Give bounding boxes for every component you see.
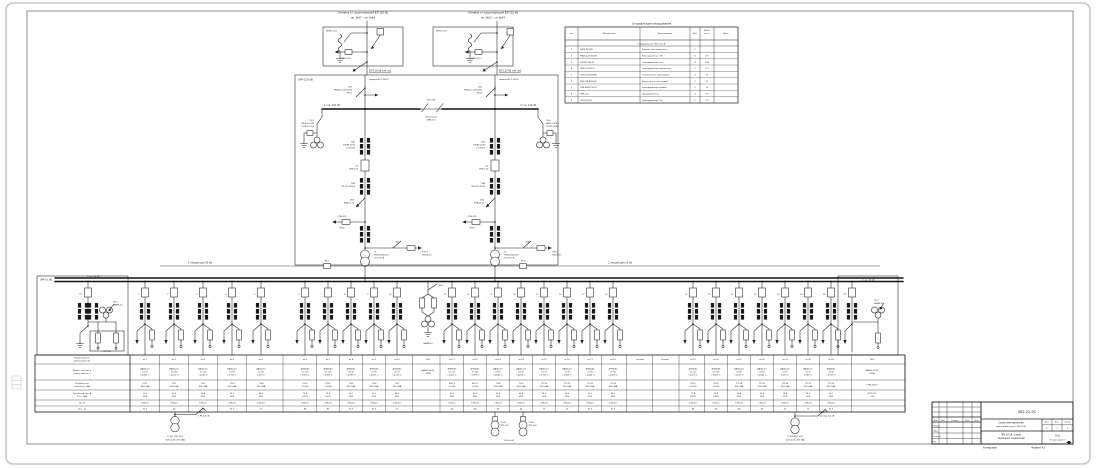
spec-name: Трансформатор ТСН [642,100,663,102]
annotation: 10/0,4 кВ; 250 кВА [165,438,185,441]
table-cell: 40 [520,409,523,411]
table-cell: ТЛК-10 [609,403,617,405]
table-row-header: Наименованиеприсоединения [74,358,91,363]
table-cell: 40 [474,409,477,411]
bay-id: 23 [777,294,780,296]
annotation: ЯКНО-110 [326,31,338,33]
feeder-bay [318,281,337,355]
table-cell: яч.23 [782,359,788,361]
annotation: Р [1046,428,1048,430]
link-disconnector-icon [520,264,527,269]
annotation: 10/0,4 кВ; 250 кВА [785,438,805,441]
feeder-bay [821,281,840,355]
table-cell: НАМИ-10-95УХЛ4 [422,369,435,375]
feeder-bay [775,281,794,355]
spec-name: Трансформатор силовой [642,86,667,89]
annotation: Q1ВЭБ-110 [349,166,358,171]
spec-mass: 0,5 [705,94,709,96]
table-cell: 36,450/5 [760,393,765,398]
table-cell: яч.14 [518,359,524,361]
generated-content: Отпайка от существующей ВЛ-110 кВоп. №47… [35,11,1071,444]
table-cell: ОПН-10/12 [866,385,878,387]
table-cell: АПвБШв3×120L=320 м [301,368,311,377]
feeder-bay [488,281,507,355]
table-row-header: Тип ТТ [79,403,87,405]
table-cell: РП-22×630 [302,383,309,388]
table-cell: РП-22×630 [325,383,332,388]
annotation: НАМИ-10 [424,342,434,345]
table-cell: ТЛК-10 [324,403,332,405]
table-cell: ТП-4250 кВА [257,383,266,388]
feeder-bay [683,281,702,355]
bay-id: 8 [344,294,346,296]
spec-name: Выключатель элегазовый [642,80,669,83]
table-cell: яч.18 [610,359,616,361]
bay-id: 25 [823,294,826,296]
bay-id: 17 [582,294,585,296]
table-cell: яч.15 [541,359,547,361]
table-cell: АПвБШв3×120L=395 м [471,368,481,377]
table-cell: яч.7 [326,359,331,361]
table-cell: 23,130/5 [230,393,235,398]
table-cell: ААШв-103×95L=145 м [757,368,767,377]
fuse-icon [876,333,881,343]
annotation: ПКТ-101 [103,351,112,353]
table-row-header: Расчётный ток, АКт.т., А/А [73,392,92,398]
spec-mass: 178 [705,62,709,64]
table-cell: РП-32×630 [690,383,697,388]
table-cell: 14,520/5 [259,393,264,398]
table-cell: 14,520/5 [565,393,570,398]
table-cell: НАМИ-10-95УХЛ4 [866,369,879,375]
spec-title: Спецификация оборудования [632,22,672,26]
annotation: Q2 [843,294,847,296]
table-cell: АПвБШв3×70L=120 м [393,368,403,377]
table-cell: ТЛК-10 [689,403,697,405]
table-cell: 31,5 [611,409,616,411]
spec-mass: 2,1 [705,81,709,83]
spec-name: Трансформатор напряжения [642,68,671,70]
spec-designation: ПКН-110 [580,94,589,96]
annotation: 2 с.ш. 110 кВ [520,104,536,107]
table-row-header: Марка, сечение идлина кабеля, м [73,370,92,375]
annotation: QS4РНДЗ-110 [474,200,485,205]
annotation: Дата [974,420,978,422]
table-cell: ААШв-103×70L=95 м [256,368,266,377]
table-cell: ААШв-103×95L=185 м [140,368,150,377]
fuse-icon [420,298,425,308]
annotation: ВЛ-110 кВ отп. №2 [499,70,522,73]
annotation: Q1 [79,294,83,296]
annotation: QS3РНДЗ-110 [344,200,355,205]
table-cell: ААШв-103×120L=210 м [169,368,179,377]
table-cell: ТП-9630 кВА [517,383,526,388]
annotation: Т1ТМН-6300/110110/11 кВ [374,252,389,260]
table-cell: АПвБШв3×120L=305 м [324,368,334,377]
table-cell: КНС-12×320 [472,383,479,388]
table-cell: яч.9 [372,359,377,361]
spec-mass: 171 [705,68,709,70]
table-cell: 72,8100/5 [325,393,331,398]
annotation: Лист [1055,422,1060,424]
table-cell: 80 [692,409,695,411]
fuse-compartment [90,331,124,351]
table-cell: 31,5 [588,409,593,411]
table-cell: 14,520/5 [806,393,811,398]
spec-qty: 4 [694,94,696,96]
spec-designation: ТМ-63/10-У1 [580,100,593,102]
spec-name: Трансформатор тока [642,62,663,64]
spec-header: Прим. [723,33,729,35]
table-cell: ТП-8630 кВА [494,383,503,388]
feeder-bay [295,281,314,355]
spec-qty: 2 [694,81,696,83]
table-cell: 23,130/5 [372,393,377,398]
table-cell: 36,450/5 [496,393,501,398]
table-cell: 40 [497,409,500,411]
table-cell: 80 [715,409,718,411]
spec-designation: РНДЗ-2-110/1000 [580,56,598,58]
hv-switchyard [55,75,903,282]
bay-id: 3 [196,294,198,296]
table-cell: ТЛК-10 [257,403,265,405]
annotation: Отпайка от существующей ВЛ-110 кВ [338,11,388,15]
table-cell: 72,8100/5 [302,393,308,398]
table-cell: ТП-2630 кВА [199,383,208,388]
incoming-cells [323,21,514,75]
annotation: Утв. [933,441,937,443]
table-cell: 36,450/5 [172,393,177,398]
table-cell: ТЛК-10 [141,403,149,405]
lv-left-vt-cell [37,276,128,355]
annotation: оп. №47 – оп. №48 [351,16,375,20]
feeder-bay [752,281,771,355]
spec-mass: 1,2 [705,100,709,102]
table-cell: ТП-3400 кВА [228,383,237,388]
table-cell: яч.16 [564,359,570,361]
fuse-icon [432,298,437,308]
table-cell: 14,520/5 [783,393,788,398]
table-cell: яч.5 [259,359,264,361]
table-cell: яч.1 [143,359,148,361]
spec-name: Разъединитель с ЗН [642,56,663,58]
table-cell: 36,450/5 [201,393,206,398]
table-cell: ТЛК-10 [517,403,525,405]
drawing-page: Отпайка от существующей ВЛ-110 кВоп. №47… [0,0,1096,468]
annotation: ОПН-110 [337,216,347,218]
table-cell: 80 [327,409,330,411]
bay-id: 16 [559,294,562,296]
annotation: 1 с.ш. 110 кВ [324,104,340,107]
feeder-bay [442,281,461,355]
table-cell: РП-1400 кВА [141,383,150,388]
table-cell: ТП-13400 кВА [609,383,618,388]
spec-pos: 9 [571,100,573,102]
feeder-bay [135,281,154,355]
annotation: 1 с.ш. 10 кВ [87,276,101,278]
table-cell: яч.19 [690,359,696,361]
table-cell: яч.13 [495,359,501,361]
table-cell: ТЛК-10 [804,403,812,405]
spec-name: Ограничитель перенапряж. [642,75,670,77]
bay-id: 13 [490,294,493,296]
annotation: Листов [1065,422,1071,424]
table-cell: 20 [807,409,810,411]
table-cell: ПКТ-1012 А [868,393,877,398]
bay-id: 9 [367,294,369,296]
table-cell: ААШв-103×95L=160 м [227,368,237,377]
annotation: Изм [934,420,938,422]
annotation: 2 с.ш. 10 кВ [862,280,876,282]
feeder-bay [511,281,530,355]
annotation: ТН-2НКФ-110-83ОПН-110/56 [546,120,559,128]
spec-header: Обозначение [602,32,616,35]
spec-designation: НКФ-110-83-У1 [580,68,596,70]
table-cell: 72,8100/5 [690,393,696,398]
tb-doc-code: 082-21-ЭС [1018,410,1037,414]
annotation: провод АС-120/19 [499,78,519,81]
table-cell: ТП-18400 кВА [827,383,836,388]
table-cell: 36,450/5 [519,393,524,398]
bay-id: 14 [513,294,516,296]
fuse-icon [96,333,101,343]
bay-id: 24 [800,294,803,296]
table-cell: 20 [260,409,263,411]
table-cell: ТП-7250 кВА [393,383,402,388]
spec-mass: 92 [706,75,709,77]
table-cell: ТЛК-10 [827,403,835,405]
annotation: ВЛ-110 кВ отп. №1 [369,70,392,73]
feeder-bay [557,281,576,355]
bay-id: 20 [708,294,711,296]
table-cell: АПвБШв3×95L=355 м [609,368,619,377]
feeder-bay [729,281,748,355]
table-cell: 23,130/5 [829,393,834,398]
annotation: ТА2ТФЗМ-110Б2×300/5 [473,141,486,150]
table-cell: 31,5 [230,409,235,411]
table-cell: ТП-1630 кВА [170,383,179,388]
annotation: ЛР-2 [521,261,526,263]
table-cell: 23,150/5 [143,393,148,398]
feeder-bay [364,281,383,355]
fuse-icon [114,333,119,343]
spec-pos: 7 [571,87,573,89]
annotation: ТСН-1 ТМГ-250 [167,436,183,438]
feeder-bay [222,281,241,355]
bay-id: 15 [536,294,539,296]
table-cell: резерв [636,359,644,361]
bay-id: 10 [389,294,392,296]
spec-section: Оборудование ОРУ-110 кВ [638,42,666,45]
spec-designation: ВЭБ-110-40/2000 [580,81,598,83]
table-cell: ТП-11250 кВА [563,383,572,388]
spec-pos: 6 [571,81,573,83]
footer-format: Формат А1 [1031,447,1045,450]
tie-disconnector-icon [422,104,429,113]
drawing-frame [27,11,1073,444]
annotation: провод АС-120/19 [369,78,389,81]
spec-qty: 2 [694,100,696,102]
spec-qty: 4 [694,56,696,58]
footer-kopiroval: Копировал [983,447,997,450]
table-cell: ТП-16250 кВА [781,383,790,388]
annotation: ТА3ТВ-110-300/5 [341,182,355,188]
tie-disconnector-icon [437,104,444,113]
table-cell: 40 [451,409,454,411]
table-cell: 20 [566,409,569,411]
lv-right-vt-cell [838,276,898,355]
tb-org-2: «Энергопроект» [1049,439,1067,441]
circuit-breaker-icon [849,288,856,297]
annotation: оп. №53 – оп. №54 [481,16,505,20]
feeder-bay [706,281,725,355]
annotation: УХЛ1 [469,228,475,230]
table-cell: яч.2 [172,359,177,361]
table-cell: РП-32×630 [713,383,720,388]
table-cell: ААШв-103×95L=130 м [734,368,744,377]
table-cell: 40 [738,409,741,411]
table-cell: ТП-6400 кВА [370,383,379,388]
annotation: ТН-1НКФ-110-83ОПН-110/56 [302,120,315,128]
table-cell: 23,130/5 [588,393,593,398]
feeder-bay [341,281,360,355]
table-cell: ААШв-103×70L=85 м [803,368,813,377]
table-cell: ТН-1 [426,359,431,361]
table-cell: КНС-12×320 [449,383,456,388]
spec-qty: 4 [694,62,696,64]
table-cell: яч.4 [230,359,235,361]
bay-id: 2 [167,294,169,296]
table-cell: яч.20 [713,359,719,361]
spec-header: Наименование [658,33,674,35]
spec-pos: 1 [571,49,573,51]
table-cell: ТЛК-10 [563,403,571,405]
table-cell: ТЛК-10 [735,403,743,405]
bay-id: 18 [605,294,608,296]
annotation: Лист [941,420,945,422]
feeder-bay [251,281,270,355]
annotation: QS1РНДЗ-2-110/1000УХЛ1 [334,87,353,95]
table-cell: АПвБШв3×95L=265 м [370,368,380,377]
aux-transformer-3 [519,412,527,436]
table-cell: яч.25 [828,359,834,361]
annotation: в РУ-0,4 кВ [198,416,210,418]
table-cell: ТП-10250 кВА [540,383,549,388]
annotation: ТА4ТВ-110-300/5 [471,182,485,188]
annotation: QS7 [395,242,400,244]
table-cell: яч.22 [759,359,765,361]
table-cell: яч.24 [805,359,811,361]
spec-designation: ТМН-6300/110-У1 [580,87,598,89]
table-cell: ТН-2 [870,359,875,361]
spec-header: поз. [570,33,574,35]
table-cell: 40 [173,409,176,411]
table-cell: яч.17 [587,359,593,361]
spec-name: Предохранитель [642,94,659,96]
annotation: ПКН-110 [472,58,482,60]
annotation: Подп. [965,420,970,422]
spec-designation: ТФЗМ-110Б-У1 [580,62,595,64]
annotation: ТСН-1ТМ-63/10 [422,252,432,257]
annotation: ТА1ТФЗМ-110Б2×300/5 [343,141,356,150]
bay-id: 6 [298,294,300,296]
table-cell: 31,5 [349,409,354,411]
bay-id: 1 [138,294,140,296]
table-row-header: Iвст., А [78,408,86,411]
outer-border [6,3,1090,464]
table-cell: ТЛК-10 [170,403,178,405]
feeder-bay [603,281,622,355]
feeder-bay [534,281,553,355]
table-cell: ТП-17250 кВА [804,383,813,388]
circuit-breaker-icon [85,288,92,297]
table-cell: 31,5 [829,409,834,411]
feeder-bay [387,281,406,355]
table-cell: АПвБШв3×120L=520 м [689,368,699,377]
annotation: резерв 0,4 кВ [820,416,835,418]
table-cell: ТП-14630 кВА [735,383,744,388]
table-cell: яч.12 [472,359,478,361]
spec-pos: 8 [571,94,573,96]
table-cell: ААШв-103×70L=180 м [539,368,549,377]
link-disconnector-icon [324,264,331,269]
tb-subtitle-2: первичных соединений [997,437,1025,440]
annotation: 10/0,4 кВ [504,440,514,442]
spec-pos: 4 [571,68,573,70]
table-cell: 31,5 [143,409,148,411]
feeder-bay [798,281,817,355]
single-line-diagram: Отпайка от существующей ВЛ-110 кВоп. №47… [0,0,1096,468]
spec-header: Массаед. кг [704,30,710,35]
sheet-frame-group [6,3,1090,464]
table-cell: 23,130/5 [611,393,616,398]
table-cell: ТЛК-10 [370,403,378,405]
table-cell: ААШв-103×70L=165 м [562,368,572,377]
bay-id: 21 [731,294,734,296]
annotation: Лит. [1045,422,1050,424]
spec-mass: 10 [706,87,709,89]
table-cell: 31,5 [372,409,377,411]
bay-id: 7 [321,294,323,296]
fold-mark [12,376,21,389]
annotation: Т2ТМН-6300/110110/11 кВ [504,252,519,260]
annotation: Пров. [933,431,939,433]
annotation: Н.контр. [933,436,941,438]
table-cell: 23,130/5 [349,393,354,398]
bay-id: 19 [685,294,688,296]
table-cell: ААШв-103×120L=240 м [198,368,208,377]
annotation: ПКН-110 [342,58,352,60]
table-cell: яч.21 [736,359,742,361]
annotation: 1 секция шин 10 кВ [188,262,212,265]
table-cell: ТЛК-10 [494,403,502,405]
feeder-bay [580,281,599,355]
table-cell: яч.11 [449,359,455,361]
annotation: ТН-2НАМИ-10 [874,300,884,305]
annotation: 1 [1056,428,1058,430]
bay-id: 4 [225,294,227,296]
bay-id: 11 [444,294,447,296]
feeder-bay [164,281,183,355]
table-cell: АПвБШв3×95L=310 м [827,368,837,377]
spec-mass: 175 [705,56,709,58]
table-cell: ТЛК-10 [301,403,309,405]
table-cell: 72,8100/5 [713,393,719,398]
table-cell: 20 [784,409,787,411]
table-cell: 20 [396,409,399,411]
table-cell: ТЛК-10 [781,403,789,405]
spec-qty: 4 [694,75,696,77]
